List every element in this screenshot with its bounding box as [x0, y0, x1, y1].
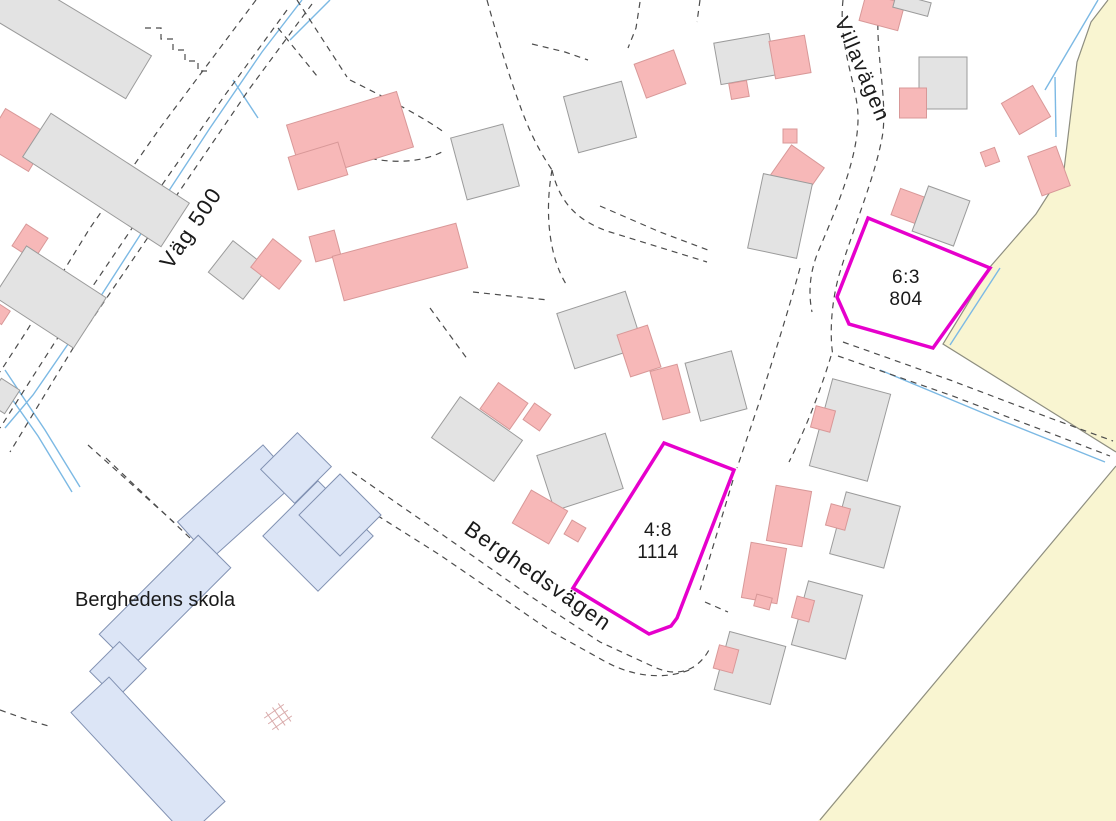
- parcel-6-3-number-label: 804: [889, 289, 922, 310]
- road-boundary-dashed-line: [600, 206, 708, 250]
- road-boundary-dashed-line: [473, 292, 548, 300]
- outbuilding: [1028, 146, 1071, 196]
- stream-line: [233, 80, 258, 118]
- outbuilding: [900, 88, 927, 118]
- road-label-villavagen: Villavägen: [830, 14, 895, 126]
- building: [23, 113, 190, 246]
- outbuilding: [523, 403, 551, 431]
- building: [451, 124, 520, 200]
- parcel-6-3-designation-label: 6:3: [892, 267, 920, 288]
- outbuilding: [0, 303, 10, 324]
- field-area: [943, 0, 1116, 452]
- lattice-line: [266, 712, 279, 730]
- building: [685, 351, 747, 421]
- building: [912, 186, 970, 246]
- outbuilding: [251, 239, 302, 290]
- road-boundary-dashed-line: [106, 458, 190, 538]
- school-buildings-layer: [71, 433, 381, 821]
- outbuilding: [741, 542, 786, 603]
- cadastral-map: Väg 500 Villavägen Berghedsvägen Berghed…: [0, 0, 1116, 821]
- road-boundary-dashed-line: [697, 0, 700, 22]
- road-boundary-dashed-line: [145, 28, 209, 71]
- road-boundary-dashed-line: [700, 480, 733, 590]
- outbuilding: [783, 129, 797, 143]
- building: [0, 246, 106, 348]
- building: [537, 433, 623, 510]
- road-boundary-dashed-line: [737, 268, 800, 468]
- outbuilding: [564, 520, 586, 542]
- school-label: Berghedens skola: [75, 589, 236, 611]
- road-boundary-dashed-line: [278, 28, 317, 76]
- road-boundary-dashed-line: [628, 2, 640, 48]
- outbuilding: [332, 223, 468, 301]
- building: [0, 378, 20, 413]
- lattice-symbol: [262, 701, 294, 733]
- building: [0, 0, 151, 99]
- road-boundary-dashed-line: [548, 170, 566, 284]
- outbuilding: [634, 50, 686, 98]
- lattice-symbol-group: [262, 701, 294, 733]
- building: [714, 33, 776, 84]
- outbuilding: [766, 485, 811, 546]
- building: [830, 492, 901, 568]
- road-boundary-dashed-line: [297, 0, 347, 77]
- road-boundary-dashed-line: [430, 308, 468, 360]
- school-building: [71, 677, 225, 821]
- outbuilding: [729, 81, 750, 100]
- map-canvas[interactable]: Väg 500 Villavägen Berghedsvägen Berghed…: [0, 0, 1116, 821]
- road-boundary-dashed-line: [552, 170, 707, 262]
- road-boundary-dashed-line: [0, 710, 52, 727]
- building: [748, 174, 813, 259]
- stream-line: [1055, 77, 1056, 137]
- road-boundary-dashed-line: [705, 602, 728, 612]
- building: [564, 81, 637, 153]
- parcel-4-8-designation-label: 4:8: [644, 520, 672, 541]
- outbuilding: [617, 325, 661, 377]
- outbuilding: [980, 147, 999, 166]
- outbuilding: [650, 364, 690, 420]
- outbuilding: [1001, 85, 1050, 134]
- parcel-4-8-number-label: 1114: [637, 542, 678, 563]
- outbuilding: [769, 35, 811, 79]
- road-boundary-dashed-line: [532, 44, 588, 60]
